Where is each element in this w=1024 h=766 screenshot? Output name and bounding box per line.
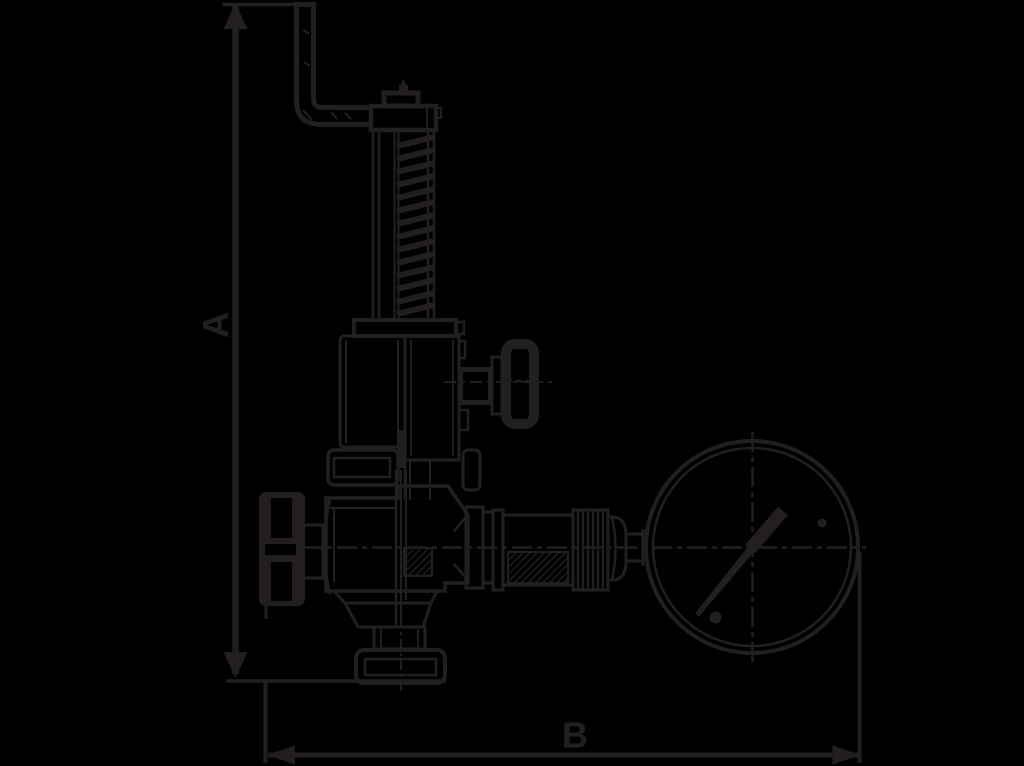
svg-text:B: B xyxy=(562,715,588,756)
svg-text:A: A xyxy=(195,312,236,338)
